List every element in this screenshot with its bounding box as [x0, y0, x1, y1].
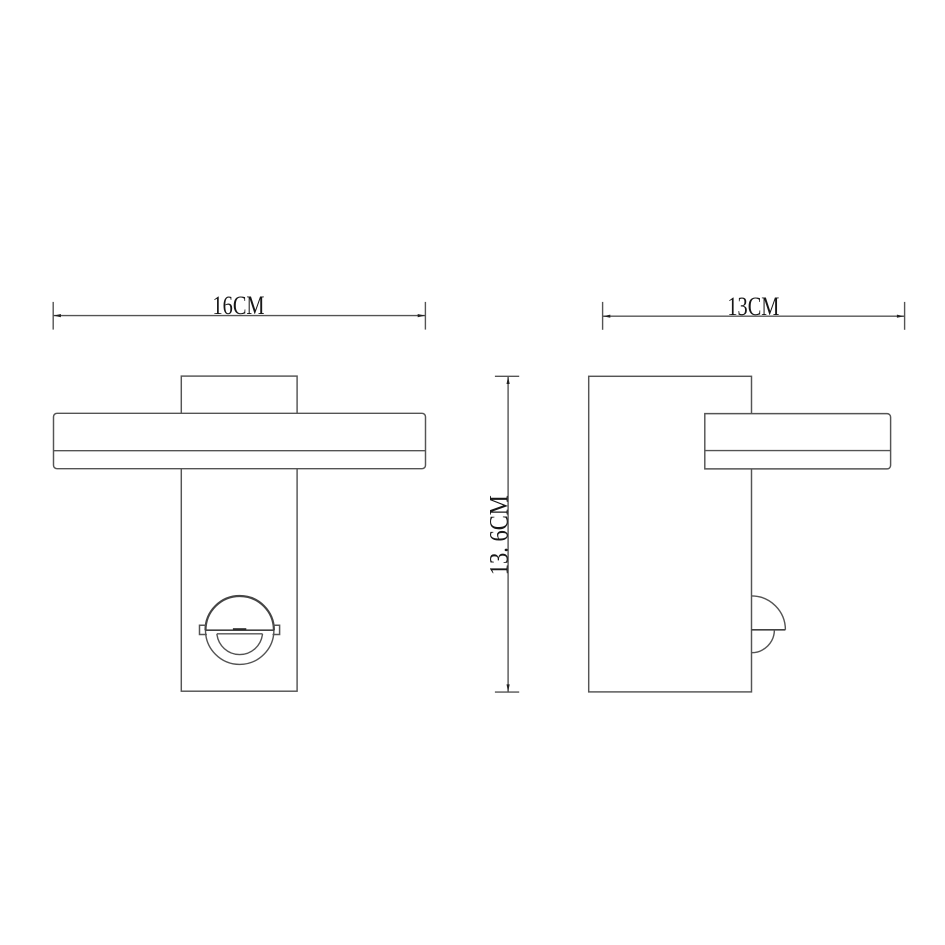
- svg-text:13CM: 13CM: [727, 292, 779, 321]
- svg-text:13. 6CM: 13. 6CM: [484, 495, 513, 575]
- svg-text:16CM: 16CM: [213, 291, 265, 320]
